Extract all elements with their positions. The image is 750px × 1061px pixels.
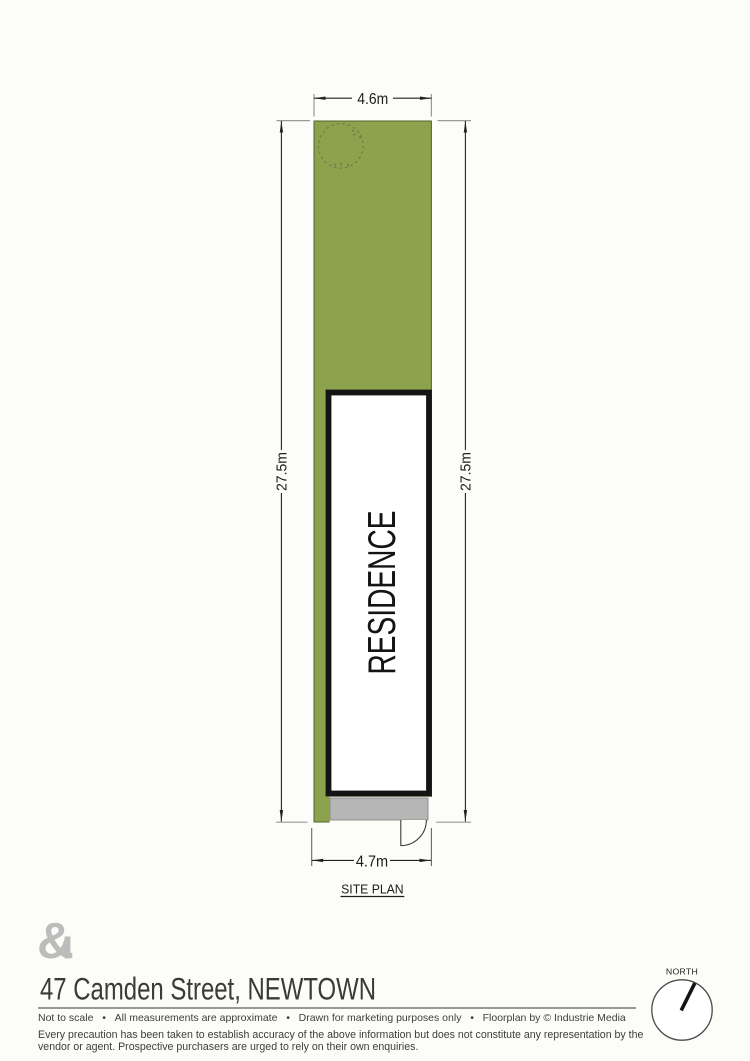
svg-text:27.5m: 27.5m: [273, 452, 290, 491]
svg-text:27.5m: 27.5m: [457, 452, 474, 491]
svg-text:Every precaution has been take: Every precaution has been taken to estab…: [38, 1029, 644, 1041]
svg-text:47 Camden Street, NEWTOWN: 47 Camden Street, NEWTOWN: [40, 971, 376, 1007]
svg-text:vendor or agent. Prospective p: vendor or agent. Prospective purchasers …: [38, 1041, 418, 1053]
svg-text:4.6m: 4.6m: [357, 91, 388, 108]
svg-text:NORTH: NORTH: [666, 967, 698, 977]
svg-text:SITE PLAN: SITE PLAN: [341, 882, 404, 897]
svg-text:Not to scale • All measure: Not to scale • All measurements are appr…: [38, 1012, 626, 1024]
svg-text:4.7m: 4.7m: [356, 853, 388, 870]
svg-text:RESIDENCE: RESIDENCE: [361, 511, 404, 675]
